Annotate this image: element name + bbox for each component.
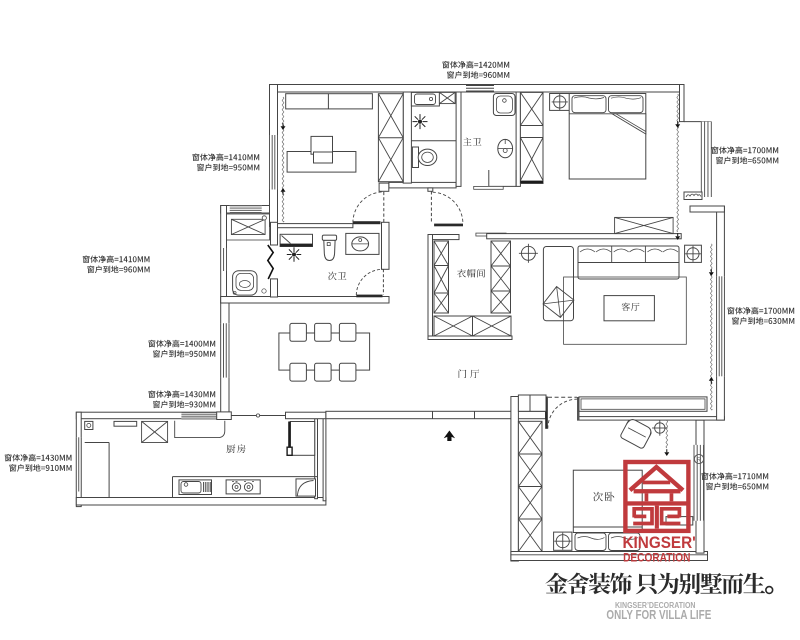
- svg-text:ONLY FOR VILLA LIFE: ONLY FOR VILLA LIFE: [606, 608, 711, 622]
- svg-text:R: R: [697, 457, 702, 464]
- svg-text:DECORATION: DECORATION: [623, 550, 690, 564]
- svg-text:KINGSER': KINGSER': [623, 534, 696, 552]
